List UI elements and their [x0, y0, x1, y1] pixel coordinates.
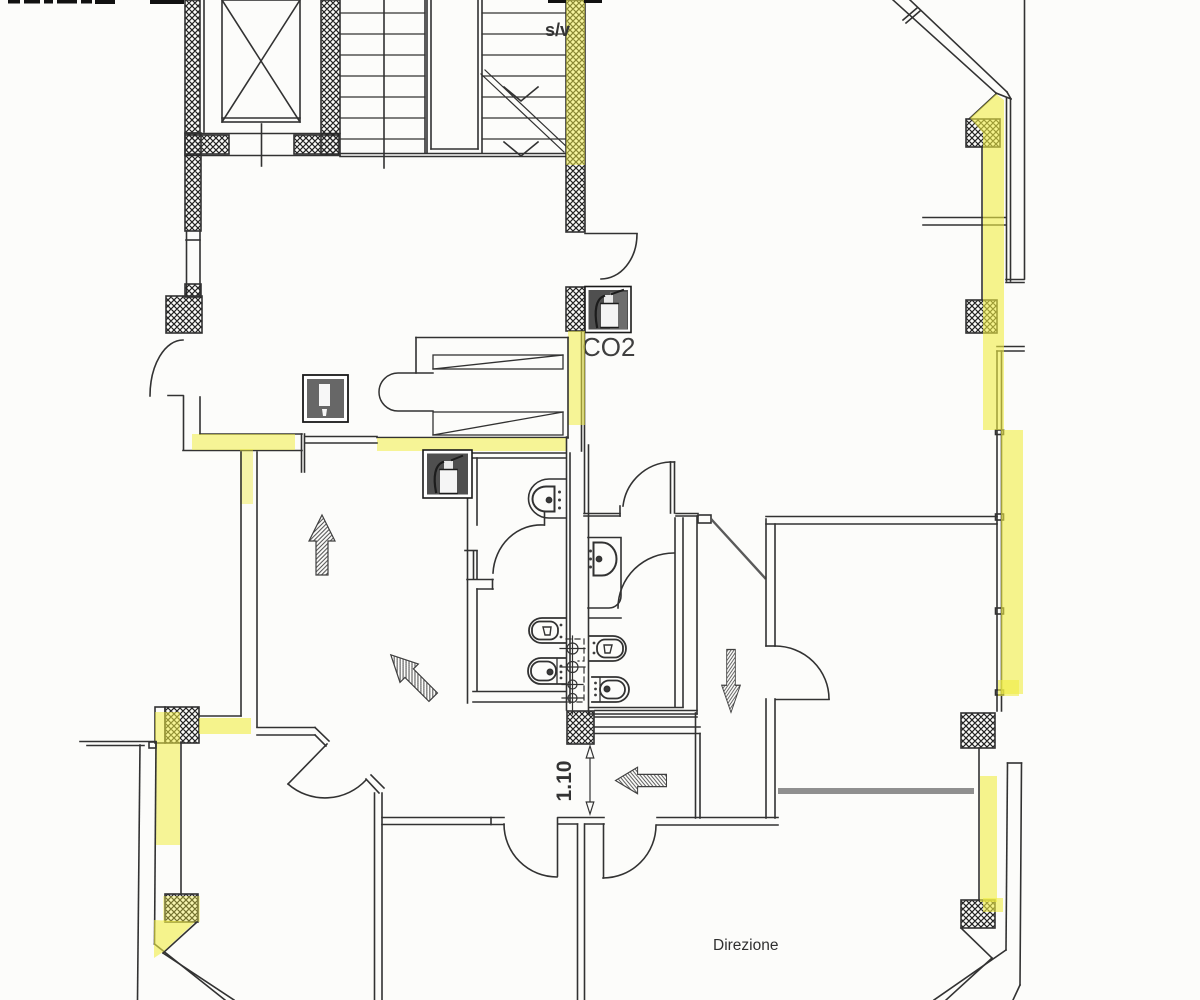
svg-text:Direzione: Direzione: [713, 937, 778, 954]
svg-text:CO2: CO2: [582, 332, 635, 362]
svg-text:1.10: 1.10: [553, 761, 576, 802]
svg-text:s/v: s/v: [545, 20, 570, 40]
